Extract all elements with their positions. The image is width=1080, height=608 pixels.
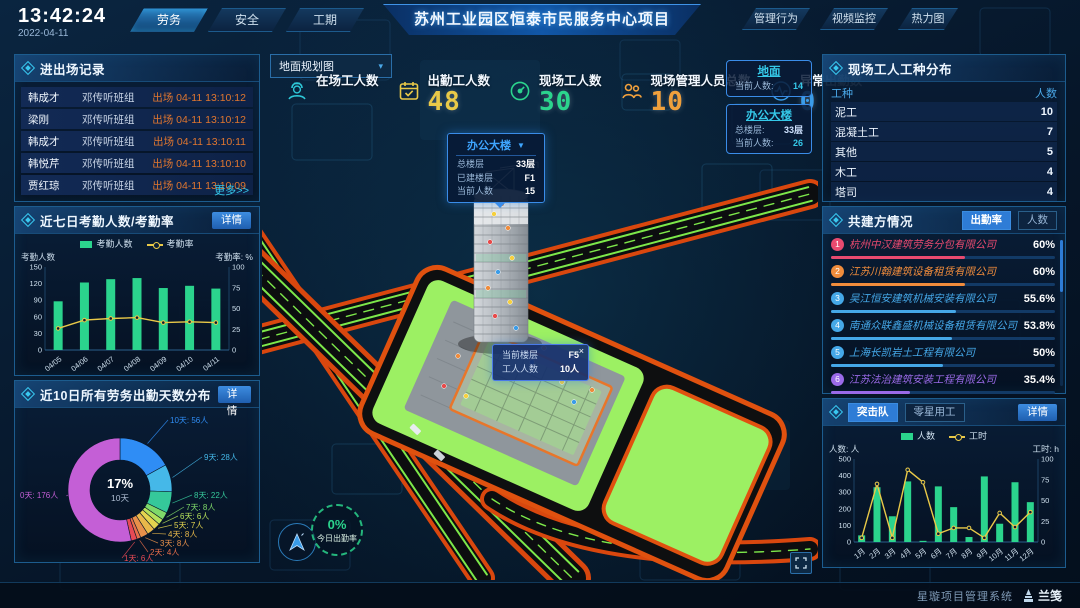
gauge-icon (507, 78, 533, 104)
panel-attendance-days-distribution: 近10日所有劳务出勤天数分布 详情 10天: 56人9天: 28人8天: 22人… (14, 380, 260, 563)
diamond-icon (21, 61, 35, 75)
svg-text:7月: 7月 (944, 546, 959, 560)
caret-down-icon[interactable]: ▼ (517, 141, 525, 150)
panel-surge-team: 突击队 零星用工 详情 人数 工时 人数: 人 工时: h 0100200300… (822, 398, 1066, 568)
progress-bar (831, 283, 1055, 286)
panel-partners: 共建方情况 出勤率 人数 1杭州中汉建筑劳务分包有限公司60% 2江苏川翰建筑设… (822, 206, 1066, 394)
svg-text:50: 50 (1041, 496, 1049, 505)
tab-schedule[interactable]: 工期 (286, 8, 364, 32)
svg-text:12月: 12月 (1018, 546, 1036, 563)
today-attendance-rate: 0% 今日出勤率 (311, 504, 363, 556)
brand-logo: 兰笺 (1023, 587, 1062, 604)
svg-text:400: 400 (838, 471, 851, 480)
chart-legend: 人数 工时 (823, 428, 1065, 443)
attendance-combo-chart: 0306090120150025507510004/0504/0604/0704… (21, 262, 253, 374)
svg-text:3月: 3月 (883, 546, 898, 560)
more-link[interactable]: 更多>> (214, 182, 249, 198)
table-row: 混凝土工7 (831, 122, 1057, 141)
svg-text:4月: 4月 (898, 546, 913, 560)
line-legend-chip (147, 244, 163, 246)
partner-row: 4南通众联鑫盛机械设备租赁有限公司53.8% (831, 317, 1055, 344)
svg-text:2天: 4人: 2天: 4人 (150, 548, 179, 557)
tab-safety[interactable]: 安全 (208, 8, 286, 32)
svg-text:04/05: 04/05 (43, 354, 63, 373)
surge-combo-chart: 010020030040050002550751001月2月3月4月5月6月7月… (828, 454, 1060, 566)
svg-text:0: 0 (232, 346, 236, 355)
table-row: 泥工10 (831, 102, 1057, 121)
tower-logo-icon (1023, 589, 1034, 602)
svg-text:04/06: 04/06 (69, 354, 89, 373)
svg-text:1月: 1月 (852, 546, 867, 560)
tab-surge-team[interactable]: 突击队 (848, 403, 898, 422)
bar-legend-chip (901, 433, 913, 440)
svg-text:25: 25 (232, 325, 240, 334)
svg-text:500: 500 (838, 455, 851, 464)
worker-icon (284, 78, 310, 104)
panel-worker-types: 现场工人工种分布 工种人数 泥工10 混凝土工7 其他5 木工4 塔司4 (822, 54, 1066, 202)
diamond-icon (829, 61, 843, 75)
record-row: 韩悦芹邓传听班组出场 04-11 13:10:10 (21, 153, 253, 173)
records-list: 韩成才邓传听班组出场 04-11 13:10:12 梁刚邓传听班组出场 04-1… (15, 82, 259, 195)
partner-row: 3吴江恒安建筑机械安装有限公司55.6% (831, 290, 1055, 317)
svg-text:04/10: 04/10 (174, 354, 194, 373)
svg-text:50: 50 (232, 304, 240, 313)
panel-title: 共建方情况 (848, 211, 913, 230)
svg-text:0: 0 (1041, 538, 1045, 547)
svg-text:04/09: 04/09 (148, 354, 168, 373)
building-tooltip[interactable]: 办公大楼 ▼ 总楼层33层 已建楼层F1 当前人数15 (447, 133, 545, 203)
svg-text:10天: 56人: 10天: 56人 (170, 416, 208, 425)
svg-text:10天: 10天 (111, 493, 129, 503)
progress-bar (831, 364, 1055, 367)
progress-bar (831, 337, 1055, 340)
rank-badge: 2 (831, 265, 844, 278)
table-row: 其他5 (831, 142, 1057, 161)
stat-attending-workers: 出勤工人数 48 (396, 70, 491, 115)
panel-title: 近七日考勤人数/考勤率 (40, 211, 174, 230)
zone-card-office-building[interactable]: 办公大楼 总楼层:33层 当前人数:26 (726, 104, 812, 154)
tab-odd-jobs[interactable]: 零星用工 (905, 403, 965, 422)
svg-text:6天: 6人: 6天: 6人 (180, 512, 209, 521)
fullscreen-button[interactable] (790, 552, 812, 574)
svg-text:9天: 28人: 9天: 28人 (204, 453, 238, 462)
time-display: 13:42:24 (18, 5, 106, 27)
people-icon (619, 78, 645, 104)
worker-types-table: 工种人数 泥工10 混凝土工7 其他5 木工4 塔司4 (823, 82, 1065, 201)
zone-card-ground[interactable]: 地面 当前人数:14 (726, 60, 812, 97)
rank-badge: 4 (831, 319, 844, 332)
svg-text:75: 75 (1041, 475, 1049, 484)
svg-text:0: 0 (847, 538, 851, 547)
svg-text:200: 200 (838, 504, 851, 513)
panel-entry-exit-records: 进出场记录 韩成才邓传听班组出场 04-11 13:10:12 梁刚邓传听班组出… (14, 54, 260, 202)
close-icon[interactable]: × (579, 346, 584, 356)
date-display: 2022-04-11 (18, 28, 106, 39)
svg-text:10月: 10月 (987, 546, 1005, 563)
record-row: 梁刚邓传听班组出场 04-11 13:10:12 (21, 109, 253, 129)
footer-bar: 星璇项目管理系统 兰笺 (0, 582, 1080, 608)
svg-text:5天: 7人: 5天: 7人 (174, 521, 203, 530)
svg-text:04/11: 04/11 (201, 354, 221, 372)
axis-labels: 人数: 人 工时: h (823, 443, 1065, 454)
partners-list: 1杭州中汉建筑劳务分包有限公司60% 2江苏川翰建筑设备租赁有限公司60% 3吴… (823, 234, 1065, 395)
diamond-icon (829, 213, 843, 227)
tab-video-monitor[interactable]: 视频监控 (820, 8, 888, 30)
progress-bar (831, 310, 1055, 313)
bar-legend-chip (80, 241, 92, 248)
partner-row: 2江苏川翰建筑设备租赁有限公司60% (831, 263, 1055, 290)
stat-value: 48 (428, 89, 491, 115)
record-row: 韩成才邓传听班组出场 04-11 13:10:12 (21, 87, 253, 107)
dashboard-screen: 13:42:24 2022-04-11 劳务 安全 工期 苏州工业园区恒泰市民服… (0, 0, 1080, 608)
partner-row: 1杭州中汉建筑劳务分包有限公司60% (831, 236, 1055, 263)
rank-badge: 3 (831, 292, 844, 305)
rank-badge: 1 (831, 238, 844, 251)
tab-attendance-rate[interactable]: 出勤率 (962, 211, 1012, 230)
svg-text:100: 100 (1041, 455, 1054, 464)
svg-text:0: 0 (38, 346, 42, 355)
svg-text:25: 25 (1041, 517, 1049, 526)
progress-bar (831, 256, 1055, 259)
svg-text:1天: 6人: 1天: 6人 (124, 554, 153, 563)
svg-text:4天: 8人: 4天: 8人 (168, 530, 197, 539)
clock: 13:42:24 2022-04-11 (18, 5, 106, 39)
svg-text:150: 150 (29, 263, 42, 272)
diamond-icon (829, 405, 843, 419)
detail-button[interactable]: 详情 (218, 386, 251, 403)
tab-labor[interactable]: 劳务 (130, 8, 208, 32)
svg-text:17%: 17% (107, 476, 133, 491)
detail-button[interactable]: 详情 (212, 212, 251, 229)
axis-labels: 考勤人数 考勤率: % (15, 251, 259, 262)
top-bar: 13:42:24 2022-04-11 劳务 安全 工期 苏州工业园区恒泰市民服… (0, 0, 1080, 42)
svg-text:5月: 5月 (913, 546, 928, 560)
panel-title: 进出场记录 (40, 59, 105, 78)
diamond-icon (21, 213, 35, 227)
table-row: 木工4 (831, 162, 1057, 181)
system-name: 星璇项目管理系统 (917, 588, 1013, 604)
attendance-days-donut: 10天: 56人9天: 28人8天: 22人7天: 8人6天: 6人5天: 7人… (18, 410, 256, 563)
tab-headcount[interactable]: 人数 (1018, 211, 1057, 230)
rank-badge: 6 (831, 373, 844, 386)
svg-text:04/07: 04/07 (96, 354, 116, 373)
svg-text:8天: 22人: 8天: 22人 (194, 491, 228, 500)
svg-text:7天: 8人: 7天: 8人 (186, 503, 215, 512)
svg-text:300: 300 (838, 488, 851, 497)
stat-value: 30 (539, 89, 602, 115)
table-row: 塔司4 (831, 182, 1057, 201)
svg-text:6月: 6月 (929, 546, 944, 560)
svg-text:9月: 9月 (975, 546, 990, 560)
panel-7day-attendance: 近七日考勤人数/考勤率 详情 考勤人数 考勤率 考勤人数 考勤率: % 0306… (14, 206, 260, 376)
svg-text:04/08: 04/08 (122, 354, 142, 373)
svg-text:8月: 8月 (959, 546, 974, 560)
svg-text:0天: 176人: 0天: 176人 (20, 491, 58, 500)
fullscreen-icon (795, 557, 807, 569)
floor-tooltip[interactable]: × 当前楼层F5 工人人数10人 (492, 344, 589, 381)
svg-text:100: 100 (838, 521, 851, 530)
svg-text:100: 100 (232, 263, 245, 272)
stat-site-workers: 现场工人数 30 (507, 70, 602, 115)
partner-row: 5上海长凯岩土工程有限公司50% (831, 344, 1055, 371)
page-title: 苏州工业园区恒泰市民服务中心项目 (383, 4, 701, 35)
navigation-arrow-icon (286, 531, 308, 553)
progress-bar (831, 391, 1055, 394)
rank-badge: 5 (831, 346, 844, 359)
panel-title: 现场工人工种分布 (848, 59, 952, 78)
stat-onsite-workers: 在场工人数 (284, 70, 379, 104)
svg-text:75: 75 (232, 283, 240, 292)
chart-legend: 考勤人数 考勤率 (15, 236, 259, 251)
tab-heatmap[interactable]: 热力图 (898, 8, 958, 30)
svg-text:90: 90 (34, 296, 42, 305)
svg-text:2月: 2月 (867, 546, 882, 560)
svg-text:120: 120 (29, 279, 42, 288)
scrollbar[interactable] (1060, 240, 1063, 386)
svg-text:3天: 8人: 3天: 8人 (160, 539, 189, 548)
tab-management-behavior[interactable]: 管理行为 (742, 8, 810, 30)
svg-text:60: 60 (34, 312, 42, 321)
panel-title: 近10日所有劳务出勤天数分布 (40, 385, 211, 404)
calendar-check-icon (396, 78, 422, 104)
detail-button[interactable]: 详情 (1018, 404, 1057, 421)
line-legend-chip (949, 436, 965, 438)
svg-text:30: 30 (34, 329, 42, 338)
partner-row: 6江苏法治建筑安装工程有限公司35.4% (831, 371, 1055, 395)
site-map-3d[interactable]: 地面规划图 ▾ 在场工人数 (262, 44, 818, 580)
svg-text:11月: 11月 (1003, 546, 1021, 563)
record-row: 韩成才邓传听班组出场 04-11 13:10:11 (21, 131, 253, 151)
diamond-icon (21, 387, 35, 401)
